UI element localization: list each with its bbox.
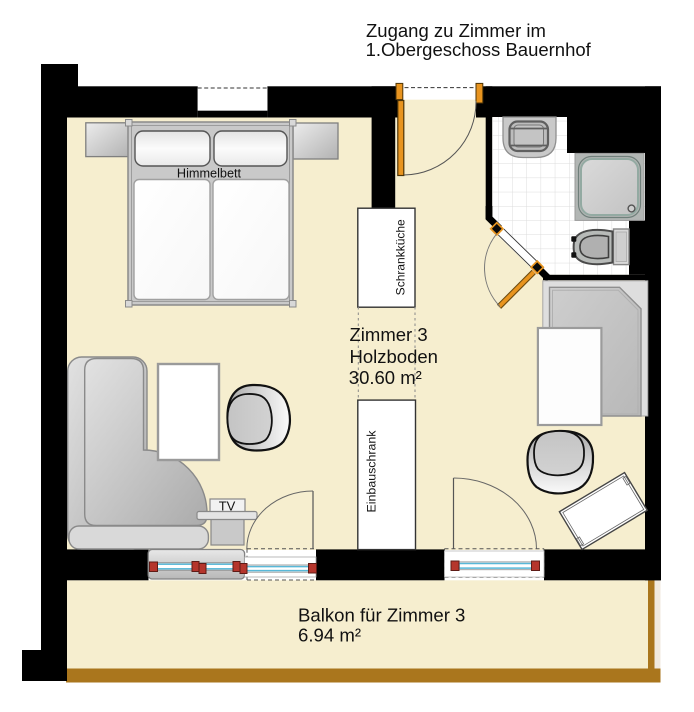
svg-text:Einbauschrank: Einbauschrank [365,430,379,513]
svg-text:Schrankküche: Schrankküche [394,219,408,295]
svg-text:Himmelbett: Himmelbett [177,167,242,181]
svg-text:Zimmer 3: Zimmer 3 [350,324,428,345]
svg-text:30.60 m²: 30.60 m² [349,367,422,388]
svg-text:1.Obergeschoss Bauernhof: 1.Obergeschoss Bauernhof [366,39,592,60]
svg-text:6.94 m²: 6.94 m² [298,625,361,646]
svg-text:TV: TV [219,499,236,514]
svg-text:Holzboden: Holzboden [350,346,438,367]
svg-text:Balkon für Zimmer 3: Balkon für Zimmer 3 [298,605,465,626]
